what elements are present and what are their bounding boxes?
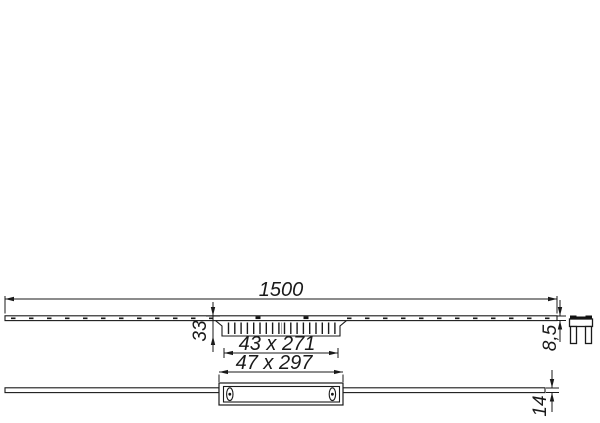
arrowhead-left xyxy=(5,297,14,301)
clip-leg-right xyxy=(586,327,592,344)
dim-body-height-label: 14 xyxy=(530,395,551,416)
clip-leg-left xyxy=(571,327,577,344)
screw-dot-right xyxy=(331,393,334,396)
dim-insert-depth-label: 33 xyxy=(190,320,211,342)
arrowhead-down xyxy=(550,379,554,388)
bottom-view-side xyxy=(5,383,545,405)
dim-profile-height-label: 8,5 xyxy=(540,324,561,351)
arrowhead-right xyxy=(334,370,343,374)
arrowhead-up xyxy=(211,336,215,345)
clip-top-plate xyxy=(570,319,593,327)
dim-total-length-label: 1500 xyxy=(259,279,304,301)
arrowhead-left xyxy=(224,351,233,355)
fixing-mark-left xyxy=(256,316,261,319)
channel-edge-left xyxy=(5,388,219,393)
arrowhead-right xyxy=(329,351,338,355)
arrowhead-right xyxy=(548,297,557,301)
drain-body-inner xyxy=(224,387,340,403)
screw-dot-left xyxy=(228,393,231,396)
drawing-canvas: 1500 33 43 x 271 xyxy=(0,0,600,423)
mounting-clip-icon xyxy=(570,316,593,344)
arrowhead-down xyxy=(558,307,562,316)
arrowhead-down xyxy=(211,307,215,316)
arrowhead-left xyxy=(219,370,228,374)
dim-frame-outer-label: 47 x 297 xyxy=(236,352,314,374)
channel-edge-right xyxy=(343,388,545,393)
technical-drawing: 1500 33 43 x 271 xyxy=(0,0,600,423)
fixing-mark-right xyxy=(304,316,309,319)
